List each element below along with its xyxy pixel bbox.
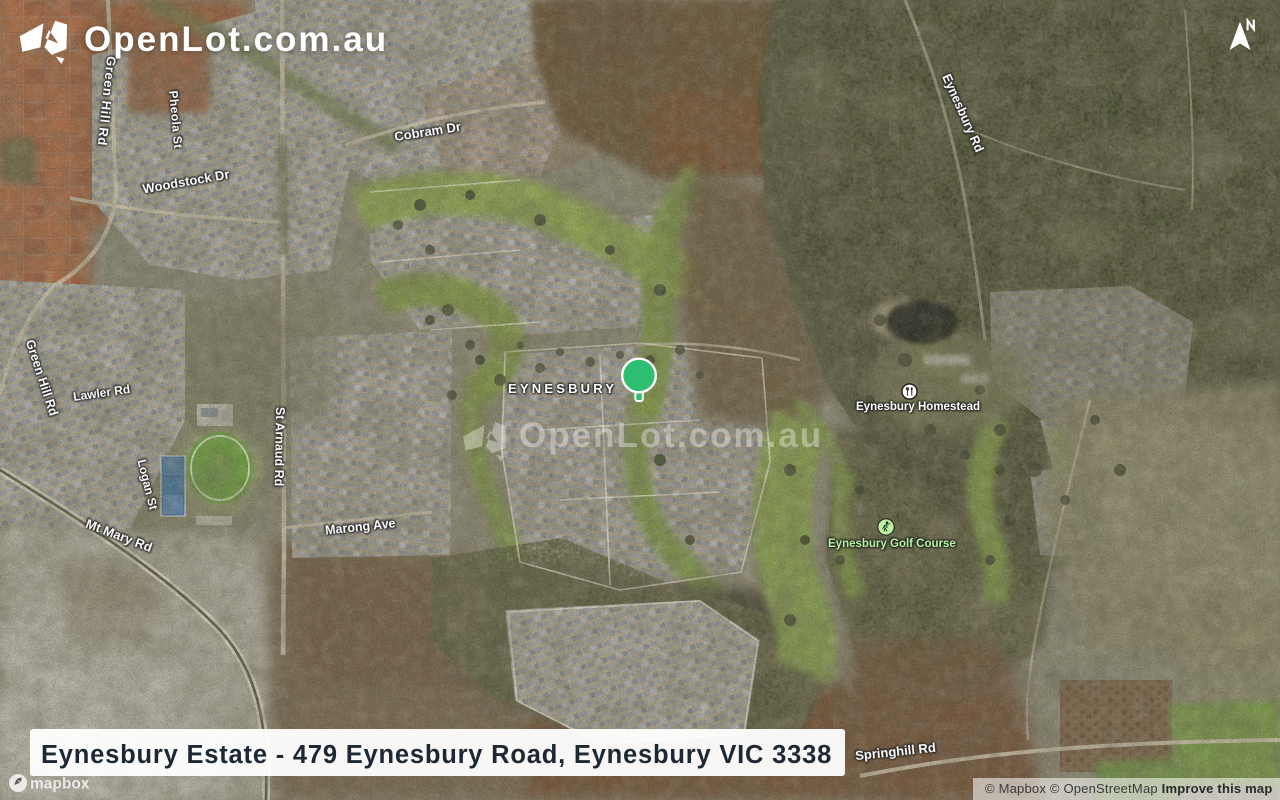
svg-text:mapbox: mapbox bbox=[30, 776, 90, 793]
